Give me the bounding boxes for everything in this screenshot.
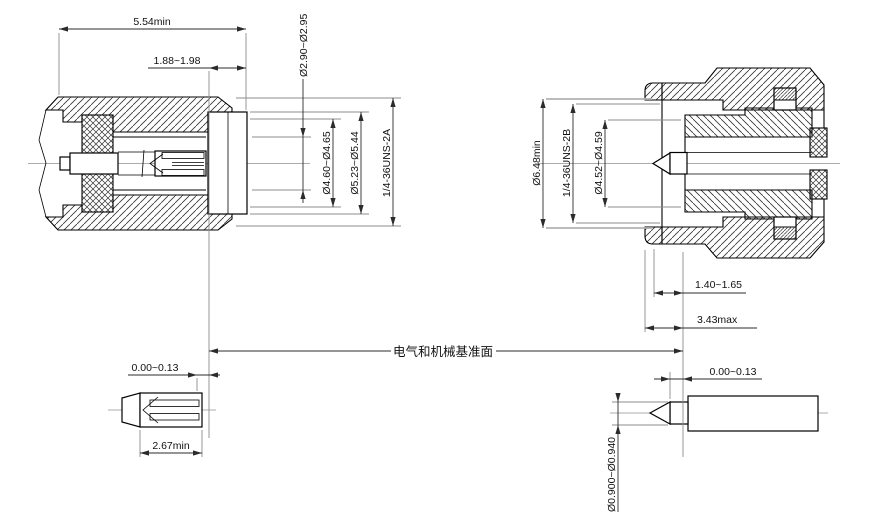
detail-pin-tip [650, 402, 670, 424]
label-pin-dia: Ø0.900~Ø0.940 [606, 437, 618, 512]
socket-contact-detail [108, 393, 216, 427]
rear-gasket-top [810, 128, 827, 157]
label-nut-face-offset: 3.43max [697, 314, 738, 326]
contact-rear-stub [60, 157, 70, 170]
label-socket-depth: 2.67min [152, 440, 190, 452]
label-pin-recess: 0.00~0.13 [709, 366, 756, 378]
label-thread-length: 1.88~1.98 [153, 55, 200, 67]
label-reference-plane: 电气和机械基准面 [393, 344, 493, 359]
detail-pin-barrel [670, 402, 688, 424]
label-outer-contact-dia: Ø4.52~Ø4.59 [593, 131, 605, 194]
label-overall-length: 5.54min [133, 16, 171, 28]
left-connector-section [28, 97, 310, 230]
dimension-arrows [59, 26, 692, 455]
plug-body-top [685, 108, 812, 137]
contact-rear-barrel [70, 153, 118, 174]
technical-drawing: 5.54min 1.88~1.98 Ø2.90~Ø2.95 Ø4.60~Ø4.6… [0, 0, 869, 527]
label-insulator-dia: Ø4.60~Ø4.65 [321, 131, 333, 194]
detail-socket-rear [122, 393, 140, 427]
mating-collar [208, 112, 247, 214]
jack-shell-top [46, 97, 232, 132]
rear-gasket-bottom [810, 170, 827, 199]
retaining-screw-bottom [774, 217, 796, 239]
label-thread-spec-b: 1/4-36UNS-2B [561, 129, 573, 197]
plug-body-bottom [685, 190, 812, 219]
coupling-nut-bottom [662, 217, 824, 258]
label-contact-recess: 0.00~0.13 [131, 362, 178, 374]
label-dielectric-offset: 1.40~1.65 [695, 279, 742, 291]
coupling-nut-top [662, 68, 824, 110]
retaining-screw-top [774, 88, 796, 110]
label-thread-spec-a: 1/4-36UNS-2A [381, 129, 393, 197]
detail-socket-sleeve [140, 393, 202, 427]
nut-face-top [645, 83, 662, 100]
label-contact-bore-dia: Ø2.90~Ø2.95 [298, 14, 310, 77]
detail-pin-body [688, 396, 818, 431]
right-connector-section [535, 68, 840, 258]
connector-drawing-svg: 5.54min 1.88~1.98 Ø2.90~Ø2.95 Ø4.60~Ø4.6… [0, 0, 869, 527]
label-nut-bore-dia: Ø6.48min [531, 140, 543, 186]
jack-shell-bottom [46, 195, 232, 230]
label-mating-bore-dia: Ø5.23~Ø5.44 [349, 131, 361, 194]
nut-face-bottom [645, 227, 662, 244]
pin-contact-detail [610, 396, 828, 431]
pin-barrel [670, 153, 687, 175]
